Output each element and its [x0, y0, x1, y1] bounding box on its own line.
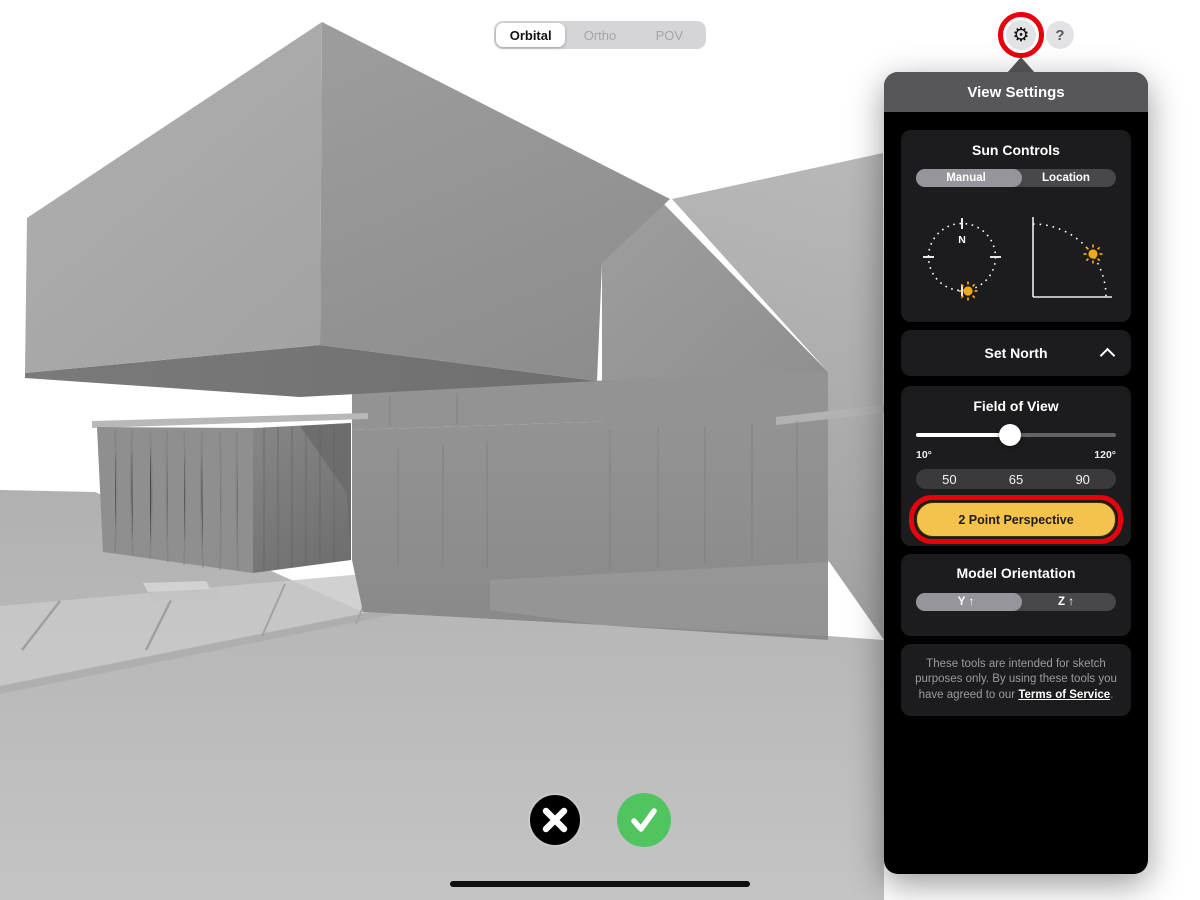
panel-title: View Settings [884, 72, 1148, 112]
orientation-z-up[interactable]: Z ↑ [1016, 593, 1116, 611]
sun-mode-manual[interactable]: Manual [916, 169, 1016, 187]
model-orientation-card: Model Orientation Y ↑ Z ↑ [901, 554, 1131, 636]
view-mode-segmented-control: Orbital Ortho POV [494, 21, 706, 49]
fov-slider[interactable] [916, 424, 1116, 446]
model-cantilever-box [25, 22, 670, 397]
fov-slider-thumb[interactable] [999, 424, 1021, 446]
home-indicator[interactable] [450, 881, 750, 887]
set-north-label: Set North [985, 345, 1048, 361]
terms-of-service-link[interactable]: Terms of Service [1018, 689, 1110, 701]
sun-icon [959, 282, 978, 301]
x-icon [541, 806, 569, 834]
help-button[interactable]: ? [1046, 21, 1074, 49]
sun-mode-toggle: Manual Location [916, 169, 1116, 187]
tab-orbital[interactable]: Orbital [496, 23, 565, 47]
fov-presets: 50 65 90 [916, 469, 1116, 489]
model-box-left-face [25, 22, 322, 373]
disclaimer-text-end: . [1110, 689, 1113, 701]
disclaimer-card: These tools are intended for sketch purp… [901, 644, 1131, 716]
two-point-perspective-button[interactable]: 2 Point Perspective [916, 502, 1116, 537]
view-settings-button[interactable]: ⚙ [1006, 20, 1036, 50]
app-window: Orbital Ortho POV ⚙ ? View Settings Sun … [0, 0, 1200, 900]
fov-preset-90[interactable]: 90 [1049, 469, 1116, 489]
set-north-button[interactable]: Set North [901, 330, 1131, 376]
tab-ortho[interactable]: Ortho [565, 23, 634, 47]
compass-north-label: N [959, 234, 967, 246]
tab-pov[interactable]: POV [635, 23, 704, 47]
sun-mode-location[interactable]: Location [1016, 169, 1116, 187]
check-icon [628, 804, 660, 836]
field-of-view-title: Field of View [901, 398, 1131, 414]
chevron-up-icon[interactable] [1100, 348, 1116, 364]
sun-controls-card: Sun Controls Manual Location N [901, 130, 1131, 322]
fov-max-label: 120° [1094, 449, 1116, 461]
model-wood-box [92, 413, 368, 573]
fov-preset-50[interactable]: 50 [916, 469, 983, 489]
fov-slider-fill [916, 433, 1010, 437]
sun-elevation-arc-dial[interactable] [1024, 211, 1116, 303]
field-of-view-card: Field of View 10° 120° 50 65 90 2 Point … [901, 386, 1131, 546]
confirm-button[interactable] [617, 793, 671, 847]
model-lower-wall [352, 372, 884, 640]
sun-icon [1083, 245, 1102, 264]
sun-azimuth-compass-dial[interactable]: N [916, 211, 1008, 303]
question-icon: ? [1055, 27, 1064, 44]
orientation-y-up[interactable]: Y ↑ [916, 593, 1016, 611]
view-settings-panel: View Settings Sun Controls Manual Locati… [884, 72, 1148, 874]
cancel-button[interactable] [528, 793, 582, 847]
gear-icon: ⚙ [1012, 24, 1029, 47]
fov-preset-65[interactable]: 65 [983, 469, 1050, 489]
popover-arrow [1007, 57, 1035, 73]
model-orientation-title: Model Orientation [901, 565, 1131, 581]
sun-controls-title: Sun Controls [901, 142, 1131, 158]
fov-min-label: 10° [916, 449, 932, 461]
orientation-toggle: Y ↑ Z ↑ [916, 593, 1116, 611]
